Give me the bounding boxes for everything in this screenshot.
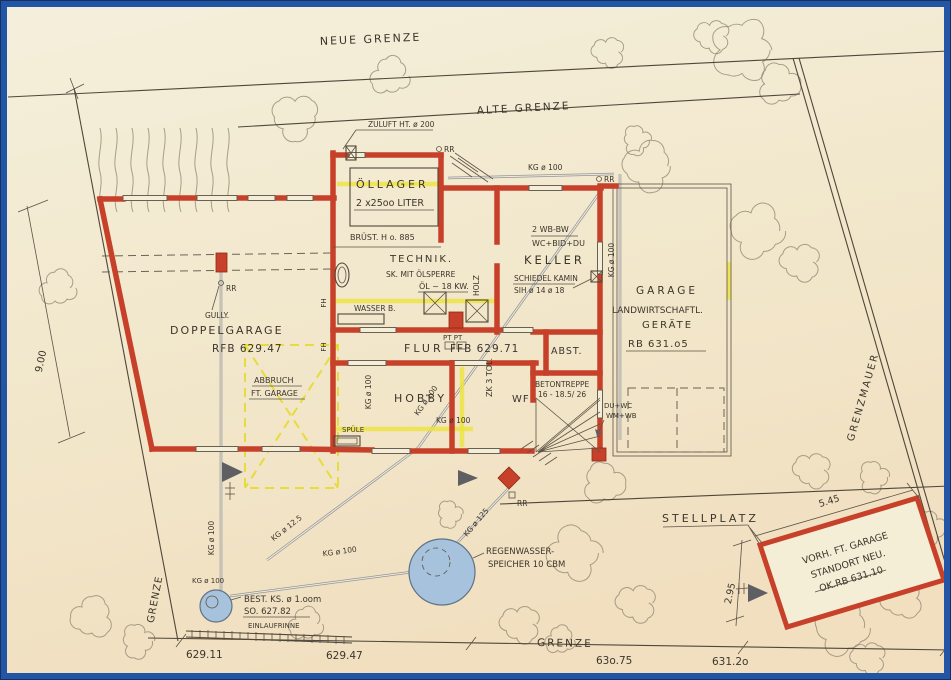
garage-label3: GERÄTE xyxy=(642,318,693,331)
technik-label: TECHNIK. xyxy=(389,254,453,265)
flur-label: FLUR xyxy=(404,342,444,355)
regenwasser-tank xyxy=(409,539,475,605)
site-plan-drawing: NEUE GRENZE ALTE GRENZE GRENZMAUER GRENZ… xyxy=(0,0,951,680)
kamin-note2: SIH ø 14 ø 18 xyxy=(514,286,565,295)
elevation-629-11: 629.11 xyxy=(186,649,223,661)
abbruch-line2: FT. GARAGE xyxy=(251,389,298,398)
elevation-630-75: 63o.75 xyxy=(596,655,632,667)
kg100-label-hobby-v: KG ø 100 xyxy=(364,375,373,410)
keller-fixtures1: 2 WB-BW xyxy=(532,225,569,234)
kg100-label-hobby: KG ø 100 xyxy=(436,416,471,425)
stellplatz-label: STELLPLATZ xyxy=(662,512,759,525)
abbruch-line1: ABBRUCH xyxy=(254,376,293,385)
garage-label1: GARAGE xyxy=(636,285,698,297)
gully-label: GULLY. xyxy=(205,311,229,320)
wasser-label: WASSER B. xyxy=(354,304,396,313)
garage-level: RB 631.o5 xyxy=(628,339,689,350)
doppelgarage-label: DOPPELGARAGE xyxy=(170,324,284,337)
einlaufrinne-label: EINLAUFRINNE xyxy=(248,622,300,630)
keller-label: KELLER xyxy=(524,253,585,267)
oellager-label: ÖLLAGER xyxy=(356,178,429,191)
boiler-note: ÖL ~ 18 KW. xyxy=(419,281,469,291)
keller-fixtures2: WC+BID+DU xyxy=(532,239,585,248)
doppelgarage-level: RFB 629.47 xyxy=(212,343,283,355)
zk-label: ZK 3 TOL. xyxy=(485,358,494,397)
elevation-631-20: 631.2o xyxy=(712,656,748,668)
fh-label-2: FH xyxy=(320,342,328,351)
oelsperre-note: SK. MIT ÖLSPERRE xyxy=(386,270,456,279)
kg100-label-north: KG ø 100 xyxy=(528,163,563,172)
kamin-note1: SCHIEDEL KAMIN xyxy=(514,274,578,283)
elevation-629-47: 629.47 xyxy=(326,650,363,662)
site-plan-sheet: NEUE GRENZE ALTE GRENZE GRENZMAUER GRENZ… xyxy=(0,0,951,680)
fh-label-1: FH xyxy=(320,298,328,307)
bruestung-note: BRÜST. H o. 885 xyxy=(350,232,415,242)
future-duwc: DU+WC xyxy=(604,402,632,410)
kg100-label-garage: KG ø 100 xyxy=(607,243,616,278)
holz-label: HOLZ xyxy=(472,275,481,296)
rr-label-1: RR xyxy=(444,145,454,154)
schacht-line1: BEST. KS. ø 1.oom xyxy=(244,595,321,605)
grenze-bottom-label: GRENZE xyxy=(537,637,593,650)
zuluft-label: ZULUFT HT. ø 200 xyxy=(368,120,435,129)
rr-label-4: RR xyxy=(517,499,527,508)
oellager-tanks: 2 x25oo LITER xyxy=(356,198,424,209)
future-wmwb: WM+WB xyxy=(606,412,637,420)
abst-label: ABST. xyxy=(551,346,583,357)
rr-label-2: RR xyxy=(604,175,614,184)
regenwasser-line1: REGENWASSER- xyxy=(486,547,554,557)
kg100-label-west: KG ø 100 xyxy=(207,521,216,556)
wf-label: WF xyxy=(512,394,530,405)
pt-label: PT PT xyxy=(443,334,463,342)
treppe-steps: 16 - 18.5/ 26 xyxy=(538,390,586,399)
spuele-label: SPÜLE xyxy=(342,425,364,434)
kg100-label-shaft: KG ø 100 xyxy=(192,577,224,585)
flur-level: FFB 629.71 xyxy=(450,343,519,355)
chimney-block xyxy=(449,312,463,328)
schacht-line2: SO. 627.82 xyxy=(244,607,291,617)
treppe-label: BETONTREPPE xyxy=(535,380,590,389)
rr-label-3: RR xyxy=(226,284,236,293)
regenwasser-line2: SPEICHER 10 CBM xyxy=(488,560,565,570)
garage-label2: LANDWIRTSCHAFTL. xyxy=(612,306,703,316)
